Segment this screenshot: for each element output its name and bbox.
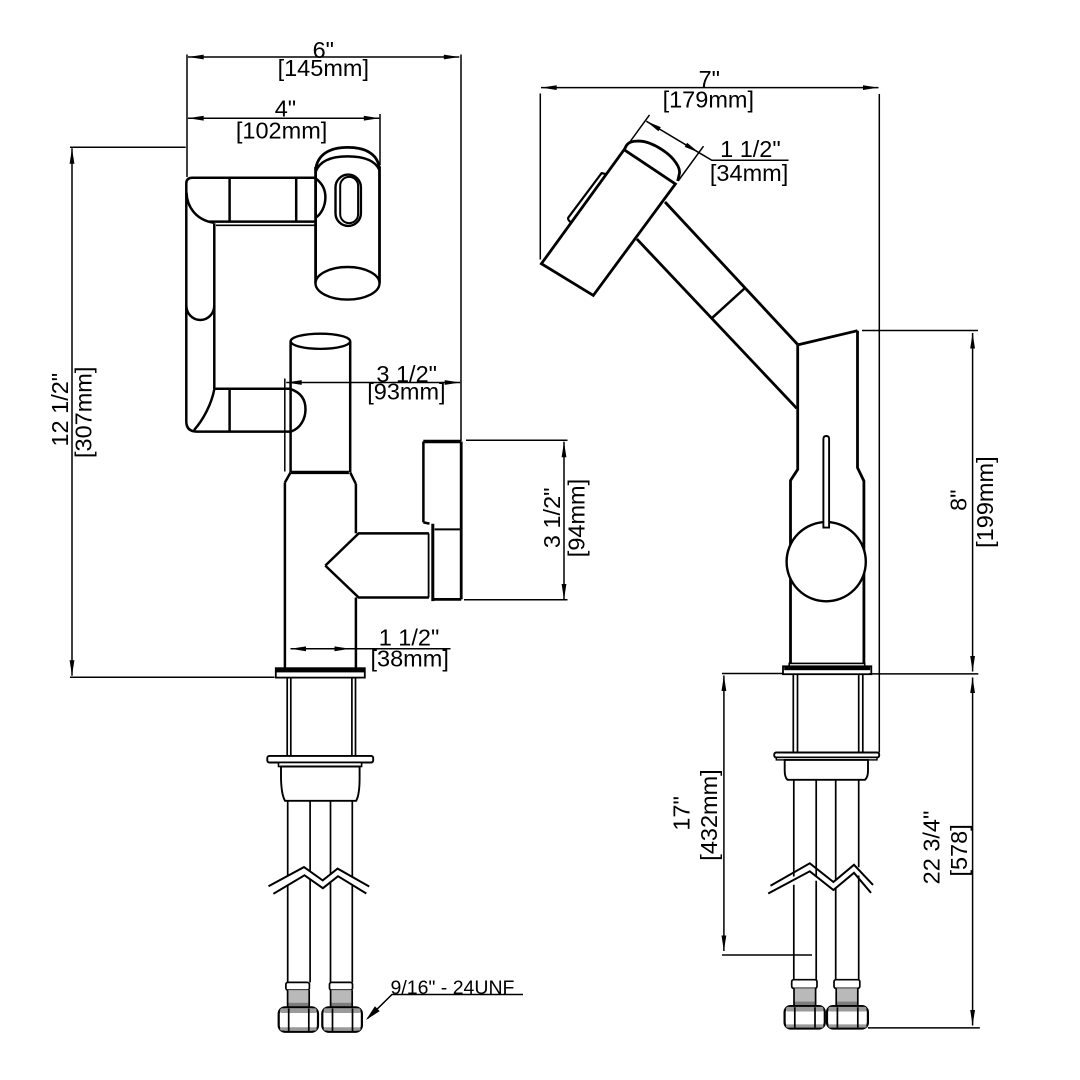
svg-text:[179mm]: [179mm] [663, 86, 754, 112]
svg-text:8": 8" [945, 489, 971, 510]
svg-text:1 1/2": 1 1/2" [720, 136, 781, 162]
svg-text:3 1/2": 3 1/2" [539, 487, 565, 548]
svg-text:[93mm]: [93mm] [367, 379, 445, 405]
svg-text:[94mm]: [94mm] [563, 479, 589, 557]
svg-text:[145mm]: [145mm] [278, 55, 369, 81]
svg-text:[578]: [578] [946, 824, 972, 876]
svg-text:[199mm]: [199mm] [972, 456, 998, 547]
svg-text:[102mm]: [102mm] [236, 118, 327, 144]
svg-text:22 3/4": 22 3/4" [919, 811, 945, 885]
svg-text:12 1/2": 12 1/2" [47, 373, 73, 447]
svg-text:[307mm]: [307mm] [70, 367, 96, 458]
svg-text:9/16" - 24UNF: 9/16" - 24UNF [391, 977, 515, 999]
svg-text:[38mm]: [38mm] [371, 646, 449, 672]
svg-text:[34mm]: [34mm] [710, 160, 788, 186]
svg-text:17": 17" [668, 796, 694, 830]
svg-text:[432mm]: [432mm] [696, 769, 722, 860]
